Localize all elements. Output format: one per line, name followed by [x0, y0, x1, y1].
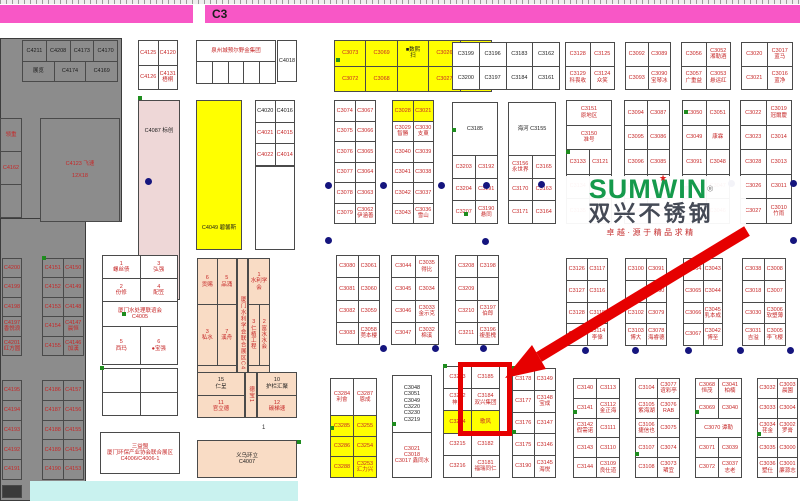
pillar-dot: [737, 347, 744, 354]
booth-cell: C3059: [358, 301, 380, 322]
hall-banner-left: [0, 5, 193, 23]
booth-cell: C3033: [758, 399, 777, 418]
star-icon: ★: [659, 173, 667, 184]
booth-row: C3286C3254: [331, 436, 376, 457]
booth-cell: C3034: [415, 278, 439, 299]
booth-cell: C3014: [766, 126, 792, 150]
booth-row: C3047C3032 棉溪: [392, 322, 438, 344]
booth-cell: C3110: [596, 438, 619, 457]
booth-row: C4188C4155: [43, 420, 83, 440]
booth-row: C3041C3038: [393, 162, 433, 183]
booth-cell: C3079: [335, 204, 355, 224]
booth-block: C3022C3019 冠爾慶C3023C3014C3028C3013C3026C…: [740, 100, 792, 224]
pillar-dot: [380, 182, 387, 189]
booth-cell: C3083: [337, 323, 358, 344]
booth-cell: [1, 185, 21, 217]
booth-cell: 德宝1: [246, 373, 256, 417]
booth-cell: C3003 晨園: [777, 379, 797, 398]
booth-cell: C3156 永世界: [509, 156, 532, 178]
booth-cell: C3106 捷信也: [636, 419, 657, 438]
booth-block: [102, 368, 178, 416]
booth-cell: C3175: [513, 434, 534, 455]
booth-cell: C3288: [331, 457, 353, 477]
booth-row: C3029 智勝C3030 支東: [393, 121, 433, 142]
booth-row: C3033C3004: [758, 398, 797, 418]
booth-cell: 3 仁植工程: [249, 305, 259, 365]
booth-cell: C3042 博至: [703, 324, 723, 345]
booth-row: C4201 红方圆: [3, 336, 21, 355]
booth-cell: C3042: [393, 183, 413, 203]
booth-cell: C3041: [393, 163, 413, 183]
booth-block: C4211C4208C4173C4170展览C4174C4169: [22, 40, 118, 82]
booth-cell: C3124 众笑: [590, 67, 615, 90]
booth-row: 展览C4174C4169: [23, 61, 117, 82]
booth-cell: C3111: [596, 419, 619, 438]
booth-cell: C3209: [456, 278, 477, 299]
booth-cell: [243, 62, 259, 83]
booth-cell: C3006 软塑薄: [764, 303, 786, 324]
booth-row: C3150 准号: [567, 125, 611, 150]
booth-row: C4200: [3, 259, 21, 277]
booth-row: C3175C3146: [513, 433, 555, 455]
booth-cell: 领重: [1, 119, 21, 151]
booth-cell: C3082: [337, 301, 358, 322]
booth-block: 三益盟 厦门环保产业协会联合展区 C4006/C4006-1: [100, 432, 180, 474]
booth-cell: C3056: [682, 43, 706, 66]
booth-block: C3178C3149C3177C3148 宝成C3176C3147C3175C3…: [512, 368, 556, 478]
booth-row: C3133C3121: [567, 149, 611, 174]
booth-cell: C3165: [532, 156, 556, 178]
booth-block: [255, 166, 295, 250]
booth-row: C3075C3066: [335, 121, 375, 142]
booth-cell: C3197: [479, 67, 506, 90]
exhibition-floorplan: C3 C4211C4208C4173C4170展览C4174C4169领重C41…: [0, 0, 800, 501]
booth-cell: C4147 晨恒: [63, 317, 84, 335]
booth-cell: C3067: [355, 101, 376, 121]
booth-cell: C3069: [696, 399, 718, 418]
corner-marker-icon: [464, 212, 468, 216]
pillar-dot: [432, 345, 439, 352]
booth-cell: C3022: [741, 101, 766, 125]
booth-row: [103, 369, 177, 392]
booth-block: C3028C3021C3029 智勝C3030 支東C3040C3039C304…: [392, 100, 434, 224]
booth-cell: C4021: [256, 123, 275, 144]
booth-row: C3094C3087: [625, 101, 669, 125]
booth-cell: 7 溪舟: [217, 305, 237, 365]
booth-row: C3143C3110: [574, 437, 619, 457]
booth-row: C3032C3003 晨園: [758, 379, 797, 398]
booth-cell: C4187: [43, 401, 63, 420]
booth-row: C3103 博大C3078 海睿德: [626, 323, 666, 345]
booth-row: C3044C3035 得比: [392, 256, 438, 277]
booth-cell: C3036 雪山: [413, 204, 434, 224]
booth-cell: C3196: [479, 43, 506, 66]
booth-cell: C3087: [647, 101, 670, 125]
booth-cell: C4149: [63, 278, 84, 296]
booth-block: C3140C3113C3141C3112 金正海C3142 假需诺C3111C3…: [573, 378, 620, 478]
booth-cell: C3080: [337, 256, 358, 277]
corner-marker-icon: [443, 364, 447, 368]
booth-row: C3026C3011: [741, 174, 791, 199]
booth-cell: C3203: [453, 156, 475, 178]
booth-cell: C3011: [766, 175, 792, 199]
booth-cell: C3064: [355, 163, 376, 183]
booth-cell: C3047: [392, 323, 415, 344]
booth-row: C3056C3052 湘勒酒: [682, 43, 730, 66]
booth-row: 厦门水处理联谊会 C4005: [103, 301, 177, 326]
booth-cell: C3036 墅仕: [758, 458, 777, 477]
booth-row: 1 螺丝债3 弘强: [103, 256, 177, 278]
booth-cell: C3190 悬同: [475, 201, 498, 223]
pillar-dot: [538, 181, 545, 188]
hall-banner-c3: C3: [205, 5, 800, 23]
booth-cell: C4162: [1, 152, 21, 184]
booth-cell: C3215: [444, 434, 471, 455]
booth-cell: C3013: [766, 150, 792, 174]
booth-block: C3048 C3051 C3049 C3220 C3230 C3219C3021…: [392, 375, 432, 478]
booth-cell: C4087 标创: [139, 101, 179, 161]
booth-row: C3156 永世界C3165: [509, 155, 555, 178]
booth-row: C4123 飞速 12X18: [41, 119, 119, 221]
booth-row: C3048 C3051 C3049 C3220 C3230 C3219: [393, 376, 431, 432]
booth-cell: C3151 原地区: [567, 101, 611, 125]
booth-row: C3208C3198: [456, 256, 498, 277]
booth-cell: C3000: [777, 438, 797, 457]
booth-cell: C4193: [3, 421, 21, 440]
booth-cell: C3182: [471, 434, 499, 455]
booth-row: C3203C3192: [453, 155, 497, 178]
booth-row: C3038C3008: [743, 259, 785, 280]
booth-cell: C3029 智勝: [393, 122, 413, 142]
booth-cell: C3043: [703, 259, 723, 280]
booth-cell: C3161: [532, 67, 559, 90]
corner-marker-icon: [452, 128, 456, 132]
booth-cell: C4211: [23, 41, 46, 61]
booth-cell: C3052 湘勒酒: [706, 43, 731, 66]
booth-cell: 6 贡赐: [198, 259, 217, 304]
booth-cell: C3199: [453, 43, 479, 66]
booth-row: C4162: [1, 151, 21, 184]
booth-cell: 15 仁呈: [198, 373, 244, 395]
booth-cell: C3197 伯郎: [477, 301, 499, 322]
booth-cell: C4198: [3, 298, 21, 316]
booth-cell: 三益盟 厦门环保产业协会联合展区 C4006/C4006-1: [101, 433, 179, 473]
booth-row: 10 护栏汇聚: [258, 373, 296, 395]
booth-cell: C3069: [365, 41, 396, 66]
booth-cell: C3162: [532, 43, 559, 66]
booth-cell: C3181 福瑞同仁: [471, 456, 499, 477]
booth-cell: C3043: [393, 204, 413, 224]
booth-row: C3030C3006 软塑薄: [743, 302, 785, 324]
booth-cell: C4153: [63, 460, 84, 479]
booth-cell: 6 ●宝强: [140, 327, 178, 364]
booth-cell: C3255: [353, 416, 376, 436]
booth-row: [1, 184, 21, 217]
booth-cell: C4020: [256, 101, 275, 122]
booth-row: C4087 标创: [139, 101, 179, 161]
booth-cell: C4190: [43, 460, 63, 479]
booth-row: C4195: [3, 381, 21, 400]
booth-row: C3128C3125: [566, 43, 614, 66]
booth-row: C3190C3145 海悦: [513, 455, 555, 477]
booth-row: C4187C4156: [43, 400, 83, 420]
booth-cell: C4197 香悦浪: [3, 317, 21, 335]
booth-row: C3207C3190 悬同: [453, 200, 497, 223]
booth-block: C3126C3117C3127C3116C3128C3115C3129C3114…: [566, 258, 608, 346]
pillar-dot: [483, 182, 490, 189]
booth-cell: C4199: [3, 278, 21, 296]
booth-cell: C4191: [3, 460, 21, 479]
booth-row: C3072C3037 志老: [696, 457, 741, 477]
booth-row: C3020C3017 蓝马: [742, 43, 792, 66]
booth-cell: C4146 加漢: [63, 337, 84, 355]
booth-row: C3028C3021: [393, 101, 433, 121]
booth-row: C3034 荏金C3002 罗膏: [758, 418, 797, 438]
booth-cell: C3031 吉溢: [743, 324, 764, 345]
booth-row: 6 贡赐5 品涌: [198, 259, 236, 304]
booth-row: C3057 广重益C3053 悬运红: [682, 66, 730, 90]
booth-cell: C4153: [43, 298, 63, 316]
booth-cell: C3128: [566, 43, 590, 66]
booth-cell: C3074: [335, 101, 355, 121]
booth-cell: ■数熙 扫: [397, 41, 428, 66]
booth-cell: 4 配笠: [140, 279, 178, 301]
booth-cell: C3045: [392, 278, 415, 299]
booth-cell: C4126: [139, 66, 158, 90]
booth-row: C3105 紫海湖C3076 RAB: [636, 398, 679, 418]
booth-cell: C3068: [365, 67, 396, 92]
booth-row: 德宝1: [246, 373, 256, 417]
booth-cell: C3128: [567, 303, 587, 324]
booth-cell: C3002 罗膏: [777, 419, 797, 438]
booth-block: 义乌环立 C4007: [197, 440, 297, 478]
booth-block: C3208C3198C3209C3210C3197 伯郎C3211C3196 複…: [455, 255, 499, 345]
booth-row: C4049 碧馨斯: [197, 207, 241, 249]
booth-cell: [197, 62, 212, 83]
booth-row: C3046C3033 金示克: [392, 300, 438, 322]
booth-row: C3022C3019 冠爾慶: [741, 101, 791, 125]
booth-cell: C3129: [567, 324, 587, 345]
booth-cell: C3017 蓝马: [767, 43, 793, 66]
booth-row: C3285C3255: [331, 415, 376, 436]
booth-block: C4018: [277, 40, 297, 82]
booth-cell: C3149: [534, 369, 556, 390]
booth-row: C3018C3007: [743, 280, 785, 302]
booth-row: C3068 恒茂C3041 柏楠: [696, 379, 741, 398]
booth-cell: C3107: [636, 438, 657, 457]
booth-cell: C3051: [706, 101, 730, 125]
corner-marker-icon: [695, 410, 699, 414]
booth-row: [256, 167, 294, 249]
booth-block: C3068 恒茂C3041 柏楠C3069C3040C3070 谭勒C3071C…: [695, 378, 742, 478]
booth-block: C3038C3008C3018C3007C3030C3006 软塑薄C3031 …: [742, 258, 786, 346]
booth-cell: C4192: [3, 440, 21, 459]
booth-row: C3023C3014: [741, 125, 791, 150]
booth-cell: C4150: [63, 259, 84, 277]
pillar-dot: [790, 237, 797, 244]
booth-cell: C3127: [567, 281, 587, 302]
booth-cell: 康霖: [706, 126, 730, 150]
booth-row: C3211C3196 複墨槐: [456, 322, 498, 344]
pillar-dot: [325, 237, 332, 244]
booth-row: C3040C3039: [393, 141, 433, 162]
booth-cell: C3058 莞本樓: [358, 323, 380, 344]
pillar-dot: [790, 180, 797, 187]
booth-cell: 2 富水水会: [259, 305, 270, 365]
pillar-dot: [482, 238, 489, 245]
booth-row: C3140C3113: [574, 379, 619, 398]
booth-row: C4191: [3, 459, 21, 479]
booth-block: C3044C3035 得比C3045C3034C3046C3033 金示克C30…: [391, 255, 439, 345]
booth-row: 2 份修4 配笠: [103, 278, 177, 301]
booth-cell: C3105 紫海湖: [636, 399, 657, 418]
booth-cell: C3060: [358, 278, 380, 299]
booth-cell: C3028: [393, 101, 413, 121]
corner-marker-icon: [566, 150, 570, 154]
hall-label: C3: [205, 5, 227, 23]
booth-cell: C3183: [506, 43, 533, 66]
booth-row: C4020C4016: [256, 101, 294, 122]
booth-cell: C3078 海睿德: [646, 324, 667, 345]
corner-marker-icon: [635, 452, 639, 456]
booth-cell: C3035 得比: [415, 256, 439, 277]
booth-row: [103, 392, 177, 416]
booth-cell: C3063: [355, 183, 376, 203]
booth-row: C3027C3010 竹雨: [741, 198, 791, 223]
booth-cell: C4022: [256, 144, 275, 165]
booth-row: [197, 61, 275, 83]
booth-cell: [477, 278, 499, 299]
booth-cell: C3112 金正海: [596, 399, 619, 418]
booth-block: C4151C4150C4152C4149C4153C4148C4154C4147…: [42, 258, 84, 356]
booth-row: C3083C3058 莞本樓: [337, 322, 379, 344]
booth-cell: C3021: [742, 67, 767, 90]
booth-cell: 义乌环立 C4007: [198, 441, 296, 477]
floating-label: 1: [262, 425, 265, 431]
booth-cell: 泉州城预尔野金集团: [197, 41, 275, 61]
booth-cell: C3253 汇力兴: [353, 457, 376, 477]
booth-cell: C3170: [509, 179, 532, 201]
booth-row: C3021C3016 蓝净: [742, 66, 792, 90]
booth-cell: [103, 393, 140, 416]
booth-block: C4125C4120C4126C4131 梧桐: [138, 40, 178, 90]
booth-cell: C3079: [646, 303, 667, 324]
booth-cell: C3037: [413, 183, 434, 203]
booth-row: C3082C3059: [337, 300, 379, 322]
booth-cell: C3035: [758, 438, 777, 457]
booth-cell: C3185: [453, 103, 497, 155]
booth-cell: C4155: [43, 337, 63, 355]
corner-marker-icon: [138, 96, 142, 100]
walkway-strip: [30, 481, 298, 501]
booth-cell: C4156: [63, 401, 84, 420]
booth-block: C3020C3017 蓝马C3021C3016 蓝净: [741, 42, 793, 90]
booth-cell: C4015: [275, 123, 295, 144]
booth-cell: C3072: [335, 67, 365, 92]
booth-cell: C3039: [718, 438, 741, 457]
booth-cell: C3010 竹雨: [766, 199, 792, 223]
booth-row: [3, 486, 21, 497]
booth-row: C4211C4208C4173C4170: [23, 41, 117, 61]
booth-cell: [397, 67, 428, 92]
booth-block: C3284 利會C3287 恩成C3285C3255C3286C3254C328…: [330, 378, 377, 478]
booth-block: C3032C3003 晨園C3033C3004C3034 荏金C3002 罗膏C…: [757, 378, 798, 478]
booth-row: C4186C4157: [43, 381, 83, 400]
corner-marker-icon: [336, 58, 340, 62]
booth-row: C3141C3112 金正海: [574, 398, 619, 418]
booth-row: C3081C3060: [337, 277, 379, 299]
booth-row: C4197 香悦浪: [3, 316, 21, 335]
booth-cell: C4131 梧桐: [158, 66, 178, 90]
booth-cell: C3016 蓝净: [767, 67, 793, 90]
booth-row: C3031 吉溢C3005 李飞樱: [743, 323, 785, 345]
booth-row: C3028C3013: [741, 149, 791, 174]
booth-cell: [259, 62, 275, 83]
booth-cell: C3062 伊涵善: [355, 204, 376, 224]
booth-row: C3107C3074: [636, 437, 679, 457]
pillar-dot: [685, 347, 692, 354]
booth-row: C3210C3197 伯郎: [456, 300, 498, 322]
booth-block: 10 护栏汇聚12 碳梯速: [257, 372, 297, 418]
booth-block: C3080C3061C3081C3060C3082C3059C3083C3058…: [336, 255, 380, 345]
booth-cell: C3141: [574, 399, 596, 418]
booth-cell: 3 私水: [198, 305, 217, 365]
booth-row: C3104C3077 谊彩亭: [636, 379, 679, 398]
booth-row: C4126C4131 梧桐: [139, 65, 177, 90]
booth-cell: C3094: [625, 101, 647, 125]
booth-cell: C3032: [758, 379, 777, 398]
booth-cell: [197, 101, 241, 207]
booth-row: C3142 假需诺C3111: [574, 418, 619, 438]
booth-cell: C3041 柏楠: [718, 379, 741, 398]
booth-block: C3185C3203C3192C3204C3191C3207C3190 悬同: [452, 102, 498, 224]
booth-row: C3102C3079: [626, 302, 666, 324]
booth-cell: C3049: [683, 126, 706, 150]
booth-cell: C3164: [532, 201, 556, 223]
booth-cell: C3044: [392, 256, 415, 277]
booth-cell: C3023: [741, 126, 766, 150]
booth-block: C3074C3067C3075C3066C3076C3065C3077C3064…: [334, 100, 376, 224]
booth-cell: [212, 62, 228, 83]
booth-cell: C3019 冠爾慶: [766, 101, 792, 125]
booth-row: C3070 谭勒: [696, 418, 741, 438]
booth-cell: C4195: [3, 381, 21, 400]
booth-cell: 1 螺丝债: [103, 256, 140, 278]
booth-cell: C3004: [777, 399, 797, 418]
booth-cell: C3046: [392, 301, 415, 322]
pillar-dot: [632, 347, 639, 354]
booth-row: C3171C3164: [509, 200, 555, 223]
booth-cell: C4125: [139, 41, 158, 65]
booth-row: 义乌环立 C4007: [198, 441, 296, 477]
booth-row: C3079C3062 伊涵善: [335, 203, 375, 224]
booth-cell: C3039: [413, 142, 434, 162]
booth-cell: C3178: [513, 369, 534, 390]
booth-row: C3021 C3018 C3017 鑫同水: [393, 432, 431, 477]
booth-cell: C3096: [625, 150, 647, 174]
booth-row: 泉州城预尔野金集团: [197, 41, 275, 61]
booth-row: C3199C3196C3183C3162: [453, 43, 559, 66]
booth-cell: C3285: [331, 416, 353, 436]
booth-row: C4155C4146 加漢: [43, 336, 83, 355]
booth-cell: C3020: [742, 43, 767, 66]
booth-block: C4123 飞速 12X18: [40, 118, 120, 222]
booth-cell: C3176: [513, 413, 534, 434]
booth-block: 海河 C3155C3156 永世界C3165C3170C3163C3171C31…: [508, 102, 556, 224]
booth-row: 三益盟 厦门环保产业协会联合展区 C4006/C4006-1: [101, 433, 179, 473]
booth-cell: C3032 棉溪: [415, 323, 439, 344]
booth-row: C3093C3090 宝琴冰: [626, 66, 670, 90]
